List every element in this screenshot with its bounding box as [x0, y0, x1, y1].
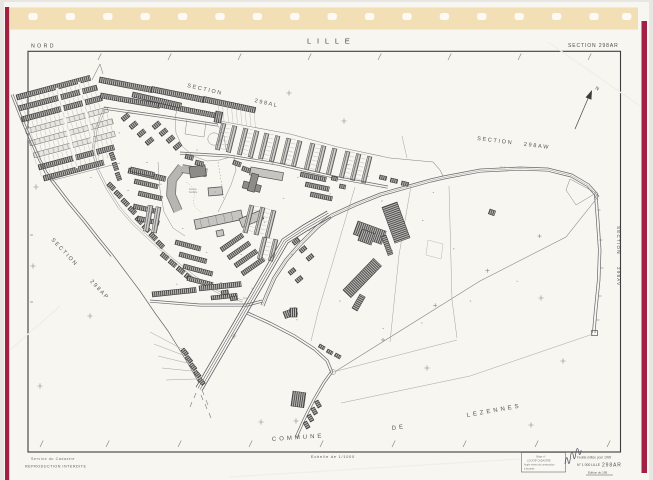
svg-text:à la partie: à la partie	[524, 468, 535, 471]
svg-text:LILLE: LILLE	[307, 37, 356, 46]
svg-text:Service du Cadastre: Service du Cadastre	[31, 457, 75, 461]
svg-text:Edition du 195: Edition du 195	[588, 471, 608, 475]
svg-text:298AR: 298AR	[602, 463, 622, 469]
svg-text:Echelle de 1/1000: Echelle de 1/1000	[311, 455, 355, 459]
svg-text:LOCATIF CADASTRE: LOCATIF CADASTRE	[527, 460, 551, 463]
svg-text:SECTION: SECTION	[616, 226, 621, 255]
svg-text:N° 1 000 LILLE: N° 1 000 LILLE	[577, 463, 601, 467]
svg-text:Route: Route	[500, 166, 507, 169]
svg-text:Scolaire: Scolaire	[189, 191, 198, 194]
svg-text:Angle retenu de construction: Angle retenu de construction	[524, 464, 555, 467]
svg-text:REPRODUCTION INTERDITE: REPRODUCTION INTERDITE	[25, 465, 86, 469]
svg-text:298AV: 298AV	[616, 267, 621, 286]
svg-text:Siège n°: Siège n°	[536, 456, 545, 459]
svg-text:NORD: NORD	[31, 44, 56, 50]
svg-text:SECTION 298AR: SECTION 298AR	[568, 43, 619, 49]
svg-text:Groupe: Groupe	[189, 188, 197, 191]
svg-text:Feuille éditée pour 1999: Feuille éditée pour 1999	[577, 456, 611, 460]
